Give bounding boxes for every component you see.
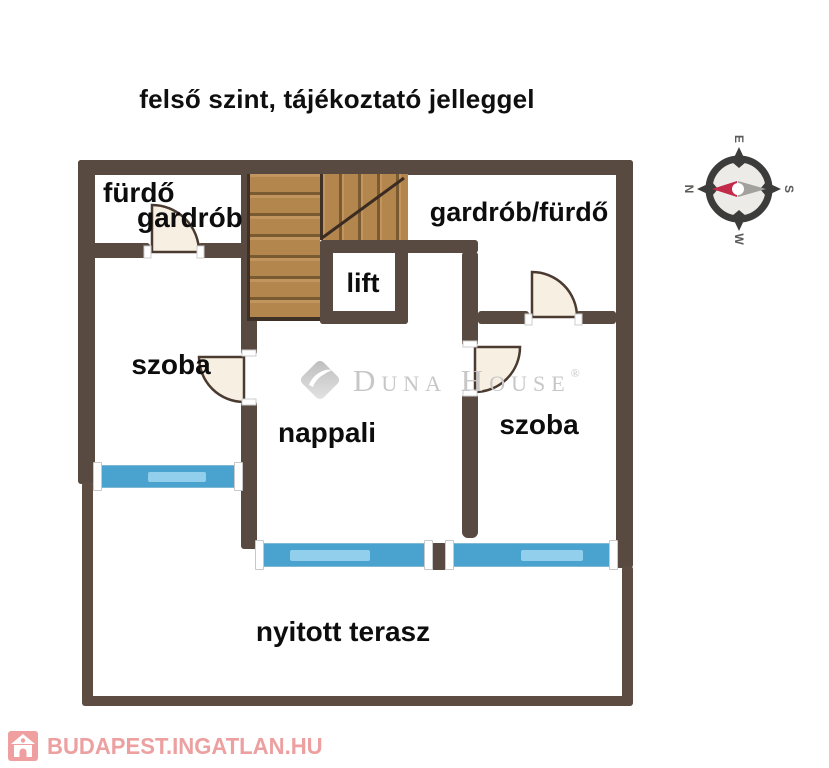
- compass-label-south: S: [782, 185, 795, 193]
- wall-terrace-right: [622, 566, 633, 705]
- wall-gardrob-szoba-left-seg: [478, 311, 529, 324]
- duna-house-logo-icon: [296, 356, 344, 404]
- wall-nappali-right-upper: [462, 252, 478, 346]
- compass-label-west: W: [732, 233, 746, 245]
- duna-house-brand-text: Duna House: [353, 363, 571, 398]
- room-label-nappali: nappali: [278, 417, 376, 449]
- wall-terrace-left: [82, 482, 93, 705]
- window-jamb: [93, 462, 102, 491]
- wall-furdo-bottom-left: [78, 243, 150, 258]
- wall-lift-bottom: [320, 311, 408, 324]
- compass-label-north: N: [683, 185, 696, 194]
- window-pane: [521, 550, 583, 561]
- stairs-lower-flight: [247, 174, 320, 321]
- listing-site-watermark: BUDAPEST.INGATLAN.HU: [8, 731, 334, 761]
- room-label-terasz: nyitott terasz: [256, 616, 430, 648]
- window-jamb: [255, 540, 264, 570]
- wall-gardrob-szoba-right-seg: [576, 311, 616, 324]
- room-label-szoba-left: szoba: [131, 349, 210, 381]
- wall-szoba-left-lower: [241, 401, 257, 549]
- window-nappali: [257, 543, 431, 567]
- room-label-gardrob-furdo: gardrób/fürdő: [430, 197, 608, 228]
- wall-nappali-right-lower: [462, 394, 478, 538]
- compass-rose: E S W N: [683, 133, 795, 245]
- wall-top: [78, 160, 633, 175]
- wall-left: [78, 160, 95, 484]
- wall-terrace-bottom: [82, 696, 633, 706]
- window-pane: [290, 550, 370, 561]
- window-jamb: [234, 462, 243, 491]
- duna-house-wordmark: Duna House®: [353, 365, 580, 396]
- stairs-upper-flight: [320, 174, 408, 240]
- room-label-gardrob: gardrób: [137, 202, 243, 234]
- duna-house-watermark: Duna House®: [296, 356, 580, 404]
- wall-right: [616, 160, 633, 568]
- window-pane: [148, 472, 206, 482]
- listing-site-text: BUDAPEST.INGATLAN.HU: [47, 733, 323, 760]
- registered-mark: ®: [571, 366, 580, 380]
- door-gardrob-furdo: [532, 272, 577, 317]
- compass-hub: [732, 183, 744, 195]
- window-szoba-right: [447, 543, 616, 567]
- room-label-lift: lift: [347, 268, 380, 299]
- window-szoba-left: [95, 465, 241, 488]
- room-label-szoba-right: szoba: [499, 409, 578, 441]
- window-jamb: [424, 540, 433, 570]
- window-jamb: [609, 540, 618, 570]
- house-icon: [8, 731, 38, 761]
- floorplan-page: felső szint, tájékoztató jelleggel: [0, 0, 829, 768]
- page-title: felső szint, tájékoztató jelleggel: [139, 84, 534, 115]
- window-jamb: [445, 540, 454, 570]
- compass-label-east: E: [732, 135, 746, 143]
